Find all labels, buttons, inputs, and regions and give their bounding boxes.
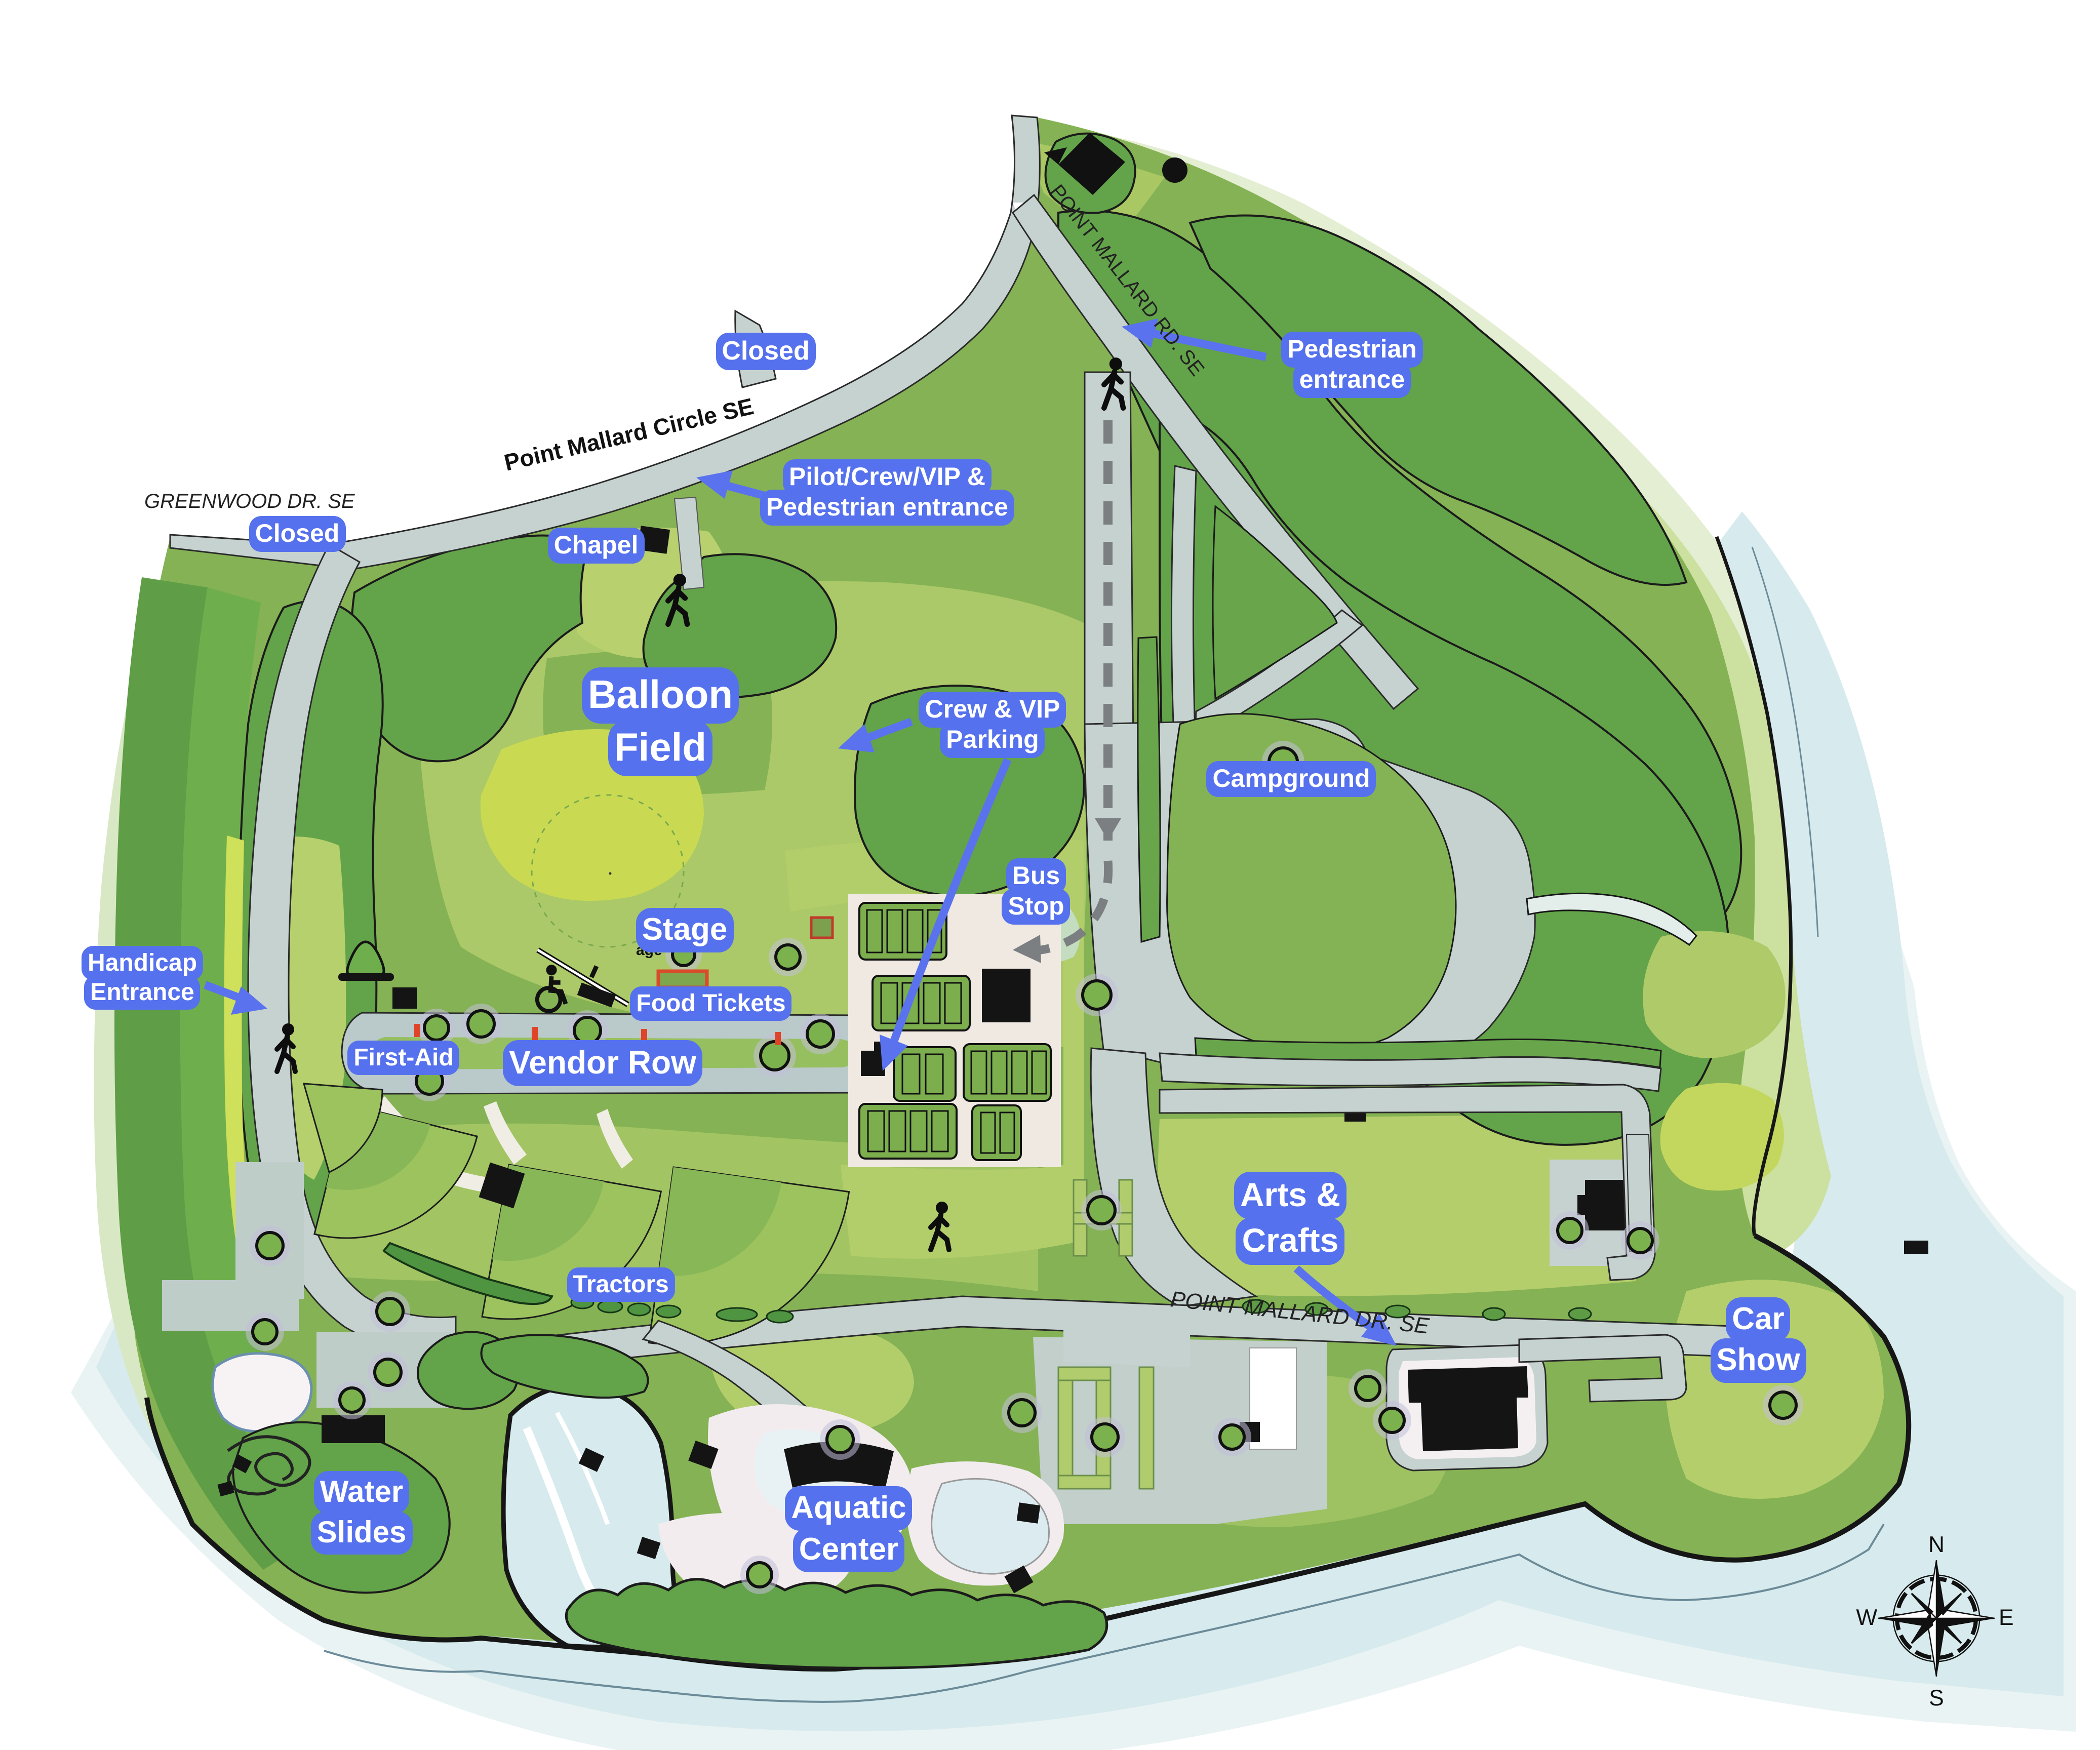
- svg-text:Parking: Parking: [946, 725, 1039, 753]
- svg-text:Pilot/Crew/VIP &: Pilot/Crew/VIP &: [789, 462, 985, 491]
- svg-text:E: E: [1999, 1605, 2014, 1630]
- svg-text:Pedestrian entrance: Pedestrian entrance: [766, 493, 1008, 521]
- svg-text:Car: Car: [1732, 1301, 1784, 1336]
- svg-text:Chapel: Chapel: [554, 531, 639, 559]
- svg-text:Pedestrian: Pedestrian: [1287, 335, 1417, 363]
- svg-text:Entrance: Entrance: [90, 979, 194, 1006]
- svg-text:Water: Water: [320, 1475, 403, 1508]
- svg-text:entrance: entrance: [1299, 365, 1405, 393]
- svg-text:Vendor Row: Vendor Row: [509, 1044, 696, 1081]
- svg-text:Stage: Stage: [642, 912, 728, 947]
- svg-text:S: S: [1929, 1686, 1944, 1711]
- svg-text:Handicap: Handicap: [88, 949, 197, 976]
- svg-text:Stop: Stop: [1008, 892, 1064, 920]
- svg-text:Campground: Campground: [1212, 764, 1370, 792]
- svg-text:Balloon: Balloon: [588, 672, 733, 717]
- svg-text:GREENWOOD DR. SE: GREENWOOD DR. SE: [144, 490, 355, 512]
- svg-text:Crew & VIP: Crew & VIP: [925, 695, 1060, 723]
- svg-text:Food Tickets: Food Tickets: [636, 990, 785, 1017]
- svg-text:Crafts: Crafts: [1242, 1221, 1339, 1259]
- svg-text:W: W: [1856, 1605, 1877, 1630]
- svg-text:Field: Field: [614, 725, 706, 769]
- svg-text:Bus: Bus: [1012, 861, 1060, 890]
- svg-text:Center: Center: [799, 1532, 898, 1567]
- svg-text:Closed: Closed: [255, 519, 340, 547]
- svg-text:Show: Show: [1716, 1342, 1800, 1377]
- svg-text:Closed: Closed: [722, 336, 809, 366]
- svg-text:First-Aid: First-Aid: [353, 1044, 453, 1071]
- svg-text:N: N: [1928, 1532, 1945, 1557]
- svg-text:Tractors: Tractors: [573, 1271, 668, 1298]
- svg-text:Aquatic: Aquatic: [791, 1490, 906, 1525]
- svg-text:Slides: Slides: [317, 1515, 407, 1549]
- svg-text:Arts &: Arts &: [1240, 1176, 1340, 1213]
